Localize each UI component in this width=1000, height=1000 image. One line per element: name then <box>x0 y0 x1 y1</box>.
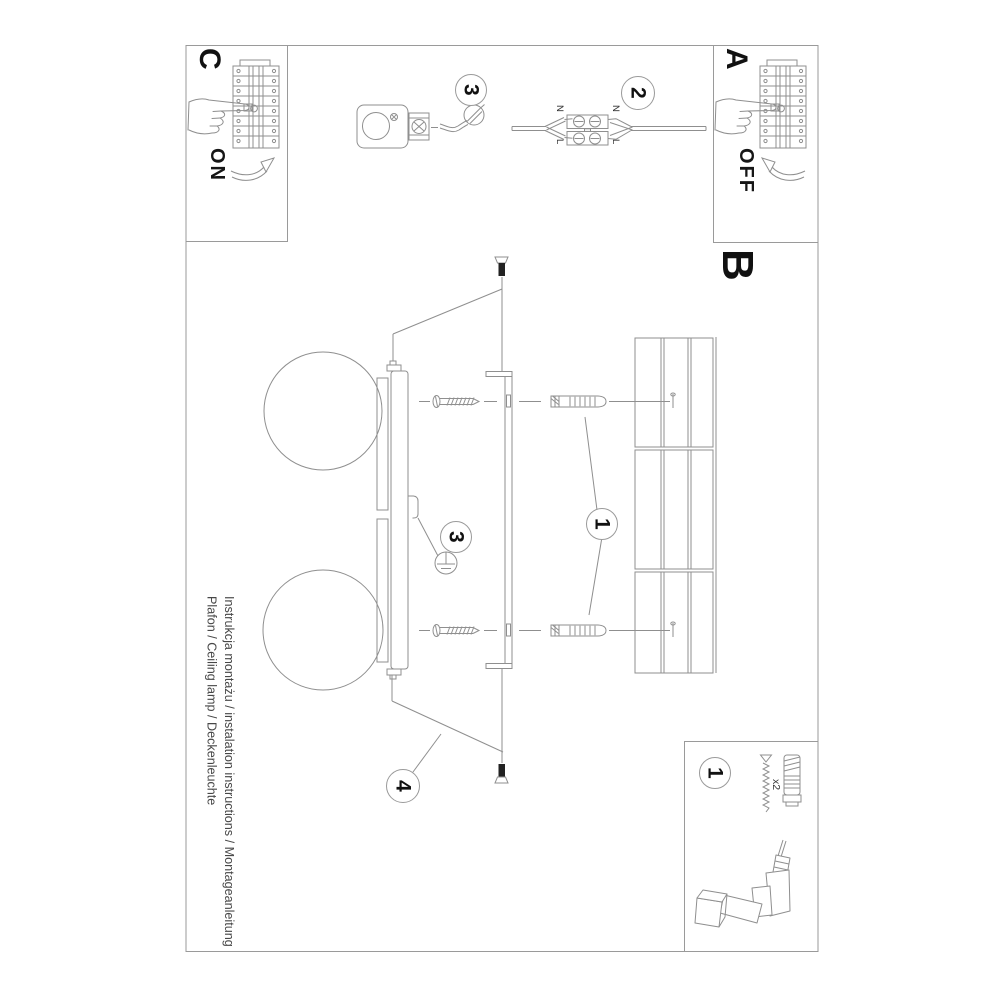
panel-c-label: C <box>192 48 226 72</box>
panel-a-illustration <box>715 60 806 180</box>
callout-step-3: 3 <box>440 521 472 553</box>
wire-label-n: N <box>610 105 621 112</box>
callout-step-4: 4 <box>386 769 420 803</box>
switch-on-label: ON <box>205 148 228 182</box>
callout-toolbox-1: 1 <box>699 757 731 789</box>
glass-globe <box>263 570 383 690</box>
mounting-screw-row <box>419 622 675 637</box>
document-title: Instrukcja montażu / instalation instruc… <box>202 596 237 961</box>
flathead-screwdriver-icon <box>435 552 457 574</box>
anchor-quantity-label: x2 <box>770 779 782 790</box>
glass-globe <box>264 352 382 470</box>
title-line-1: Instrukcja montażu / instalation instruc… <box>220 596 238 961</box>
curved-arrow-icon <box>762 158 805 180</box>
title-line-2: Plafon / Ceiling lamp / Deckenleuchte <box>202 596 220 961</box>
wall-plug-illustration <box>783 755 801 806</box>
switch-off-label: OFF <box>734 148 757 194</box>
page-frame <box>186 46 818 952</box>
panel-a-label: A <box>719 48 753 72</box>
power-drill-illustration <box>695 840 790 927</box>
flathead-screwdriver-icon <box>464 105 485 126</box>
mounting-screw-row <box>419 393 675 408</box>
terminal-block-illustration <box>512 115 706 145</box>
ceiling-lamp-exploded-view <box>263 257 716 783</box>
callout-step-3: 3 <box>455 74 487 106</box>
callout-step-2: 2 <box>621 76 655 110</box>
diagram-linework <box>0 0 1000 1000</box>
callout-step-1: 1 <box>586 508 618 540</box>
lampholder-illustration <box>357 105 485 149</box>
panel-c-illustration <box>188 60 279 180</box>
wire-label-l: L <box>554 139 565 144</box>
panel-b-label: B <box>712 249 762 281</box>
wire-label-n: N <box>554 105 565 112</box>
curved-arrow-icon <box>231 158 274 180</box>
instruction-sheet: C A B ON OFF 3 2 3 1 4 1 N L N L x2 Inst… <box>0 0 1000 1000</box>
wire-label-l: L <box>610 139 621 144</box>
